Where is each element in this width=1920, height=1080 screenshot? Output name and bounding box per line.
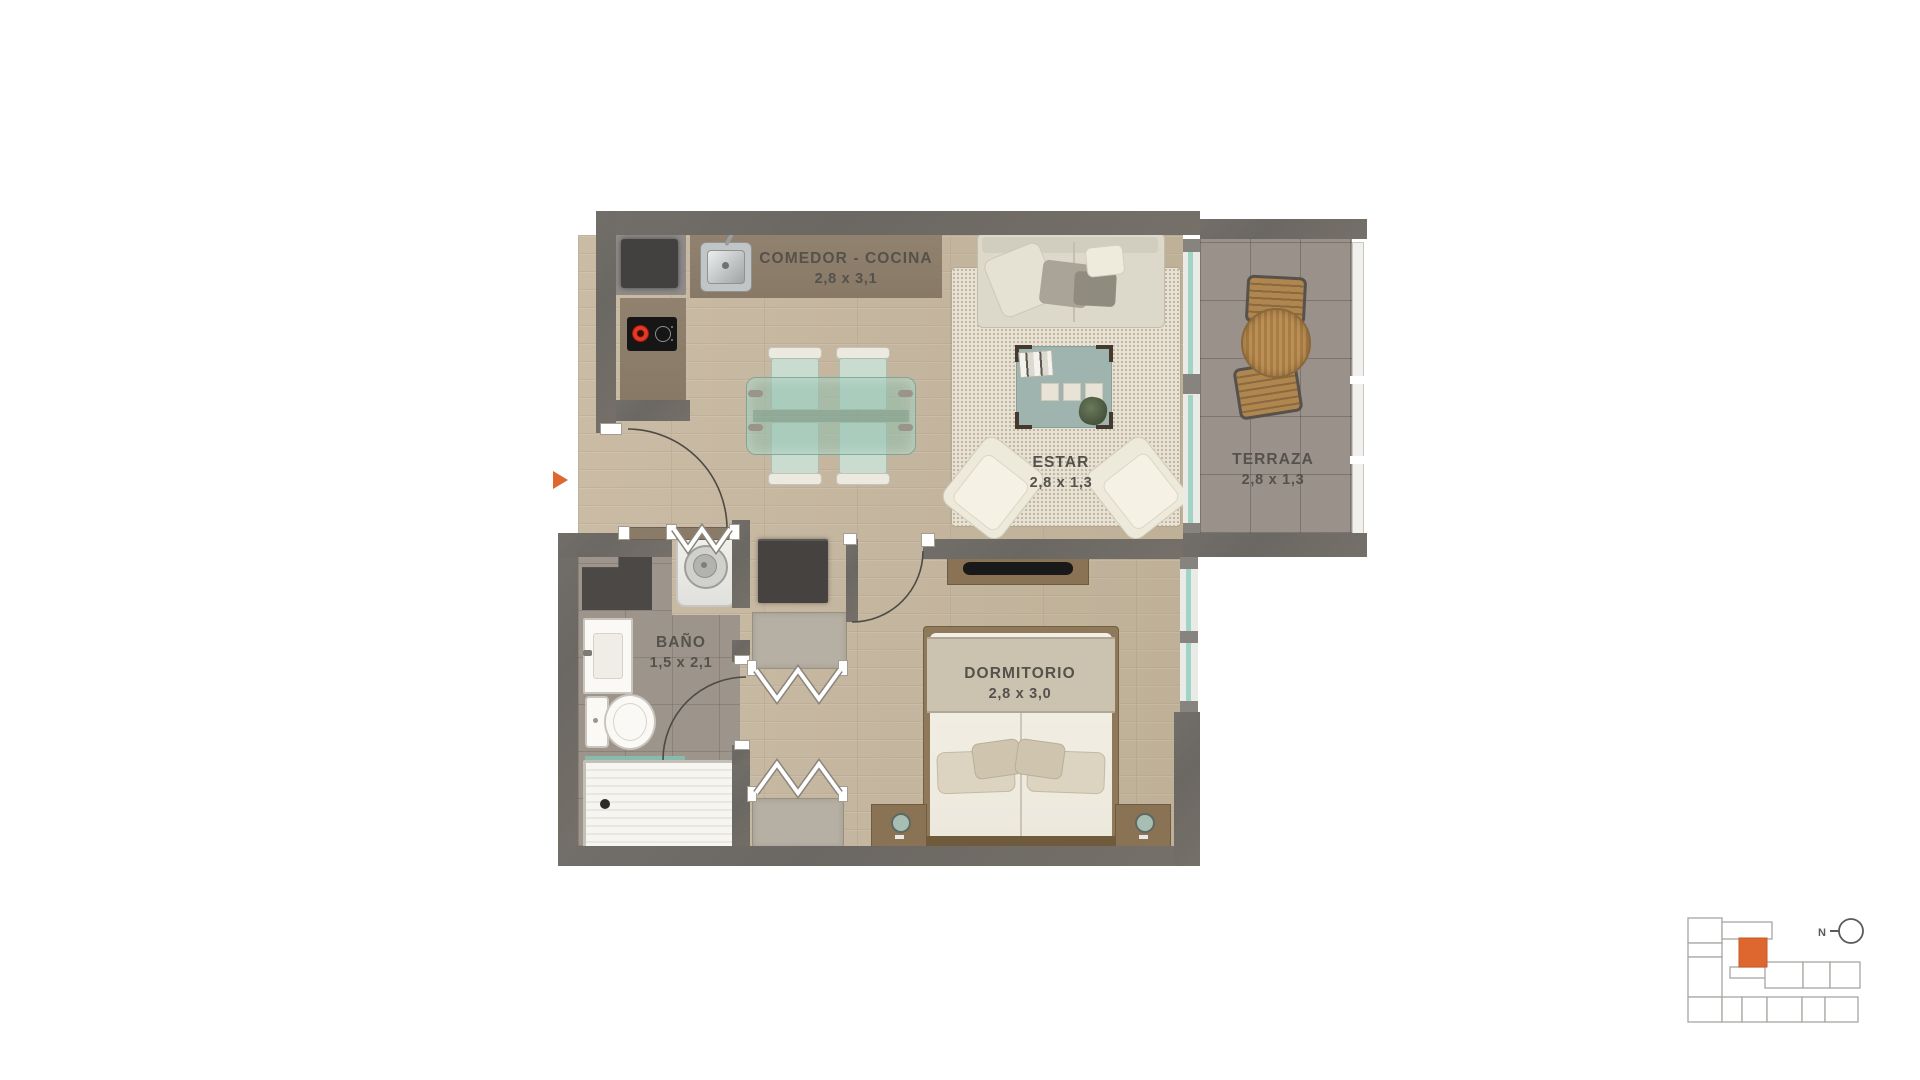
fridge-top — [621, 239, 678, 288]
door-jamb — [666, 524, 677, 540]
wall-terrace-bottom — [1183, 533, 1367, 557]
window-glass — [1186, 569, 1191, 631]
door-jamb — [838, 660, 848, 676]
room-name: COMEDOR - COCINA — [759, 248, 932, 269]
room-dimensions: 2,8 x 1,3 — [1030, 473, 1093, 494]
chair-armrest — [748, 424, 763, 431]
laundry-header — [622, 527, 734, 540]
chair-armrest — [898, 390, 913, 397]
railing-gap — [1350, 376, 1365, 384]
wardrobe — [758, 539, 828, 603]
magazine — [1018, 350, 1054, 378]
window-connector — [1183, 523, 1200, 533]
chair-back — [768, 473, 822, 485]
terrace-table — [1241, 308, 1311, 378]
tv-console — [947, 557, 1089, 585]
window-glass — [1188, 395, 1193, 523]
tv — [963, 562, 1073, 575]
window-connector — [1183, 374, 1200, 394]
coffee-table — [1016, 346, 1112, 428]
window-connector — [1183, 239, 1200, 252]
compass-circle-icon — [1839, 919, 1863, 943]
flush-button — [593, 718, 598, 723]
highlighted-unit — [1739, 938, 1767, 967]
sofa — [977, 233, 1165, 328]
bed — [923, 626, 1119, 850]
shower — [583, 760, 747, 850]
vanity-faucet — [583, 650, 592, 656]
lamp-base — [895, 835, 904, 839]
wall-bottom — [558, 846, 1183, 866]
door-jamb — [747, 660, 757, 676]
coaster — [1041, 383, 1059, 401]
compass-north-label: N — [1818, 927, 1826, 939]
wall-bedroom-estar — [923, 539, 1183, 559]
room-dimensions: 2,8 x 3,1 — [759, 269, 932, 290]
door-jamb — [838, 786, 848, 802]
coaster — [1063, 383, 1081, 401]
fridge — [614, 233, 686, 295]
shower-glass — [585, 756, 685, 760]
nightstand — [1115, 804, 1171, 850]
door-jamb — [600, 423, 622, 435]
cooktop — [627, 317, 677, 351]
window-connector — [1180, 557, 1198, 569]
railing-gap — [1350, 456, 1365, 464]
wall-kitchen-stub — [616, 400, 690, 421]
table-corner — [1096, 345, 1113, 362]
bedroom-window — [1180, 557, 1198, 712]
duvet-crease — [1020, 707, 1022, 845]
sofa-pillow — [1085, 244, 1126, 278]
chair-armrest — [748, 390, 763, 397]
wall-left — [596, 211, 616, 433]
door-jamb — [618, 526, 630, 540]
toilet-seat — [613, 703, 647, 741]
room-label-estar: ESTAR 2,8 x 1,3 — [1030, 452, 1093, 494]
terrace-railing — [1352, 242, 1364, 535]
vanity-basin — [593, 633, 623, 679]
window-glass — [1188, 252, 1193, 374]
window-connector — [1180, 701, 1198, 712]
cooktop-knob — [671, 339, 673, 341]
wall-bath-left — [558, 533, 578, 866]
door-jamb — [747, 786, 757, 802]
wall-bedroom-right — [1174, 712, 1200, 866]
door-jamb — [921, 533, 935, 547]
lamp — [1135, 813, 1155, 833]
dining-table — [746, 377, 916, 455]
closet — [752, 612, 847, 669]
window-connector — [1180, 631, 1198, 643]
wall-terrace-top — [1200, 219, 1367, 239]
burner-off — [655, 326, 671, 342]
room-label-dormitorio: DORMITORIO 2,8 x 3,0 — [964, 663, 1075, 705]
chair-armrest — [898, 424, 913, 431]
pillow-small — [1014, 738, 1067, 780]
window-glass — [1186, 643, 1191, 701]
nightstand — [871, 804, 927, 850]
shower-drain — [600, 799, 610, 809]
closet — [752, 798, 844, 848]
table-runner — [753, 410, 909, 422]
wall-bedroom-door-stub — [846, 539, 858, 622]
room-dimensions: 2,8 x 3,0 — [964, 684, 1075, 705]
room-dimensions: 1,5 x 2,1 — [650, 653, 713, 674]
sink-drain — [722, 262, 729, 269]
room-name: ESTAR — [1030, 452, 1093, 473]
cooktop-knob — [671, 326, 673, 328]
floor-plan-page: COMEDOR - COCINA 2,8 x 3,1 ESTAR 2,8 x 1… — [0, 0, 1920, 1080]
toilet-bowl — [604, 694, 656, 750]
building-key-plan: N — [1670, 900, 1900, 1040]
room-dimensions: 2,8 x 1,3 — [1232, 470, 1314, 491]
room-name: TERRAZA — [1232, 449, 1314, 470]
room-label-terraza: TERRAZA 2,8 x 1,3 — [1232, 449, 1314, 491]
door-jamb — [734, 740, 750, 750]
door-jamb — [843, 533, 857, 545]
lamp-base — [1139, 835, 1148, 839]
chair-back — [836, 473, 890, 485]
kitchen-sink — [700, 242, 752, 292]
vanity-sink — [583, 618, 633, 694]
living-window — [1183, 239, 1200, 533]
washer-agitator — [701, 562, 707, 568]
lamp — [891, 813, 911, 833]
wall-top — [596, 211, 1200, 235]
room-label-bano: BAÑO 1,5 x 2,1 — [650, 632, 713, 674]
door-jamb — [729, 524, 740, 540]
burner-on — [632, 325, 649, 342]
room-label-comedor-cocina: COMEDOR - COCINA 2,8 x 3,1 — [759, 248, 932, 290]
room-name: DORMITORIO — [964, 663, 1075, 684]
entrance-arrow-icon — [553, 471, 568, 489]
table-corner — [1015, 412, 1032, 429]
room-name: BAÑO — [650, 632, 713, 653]
